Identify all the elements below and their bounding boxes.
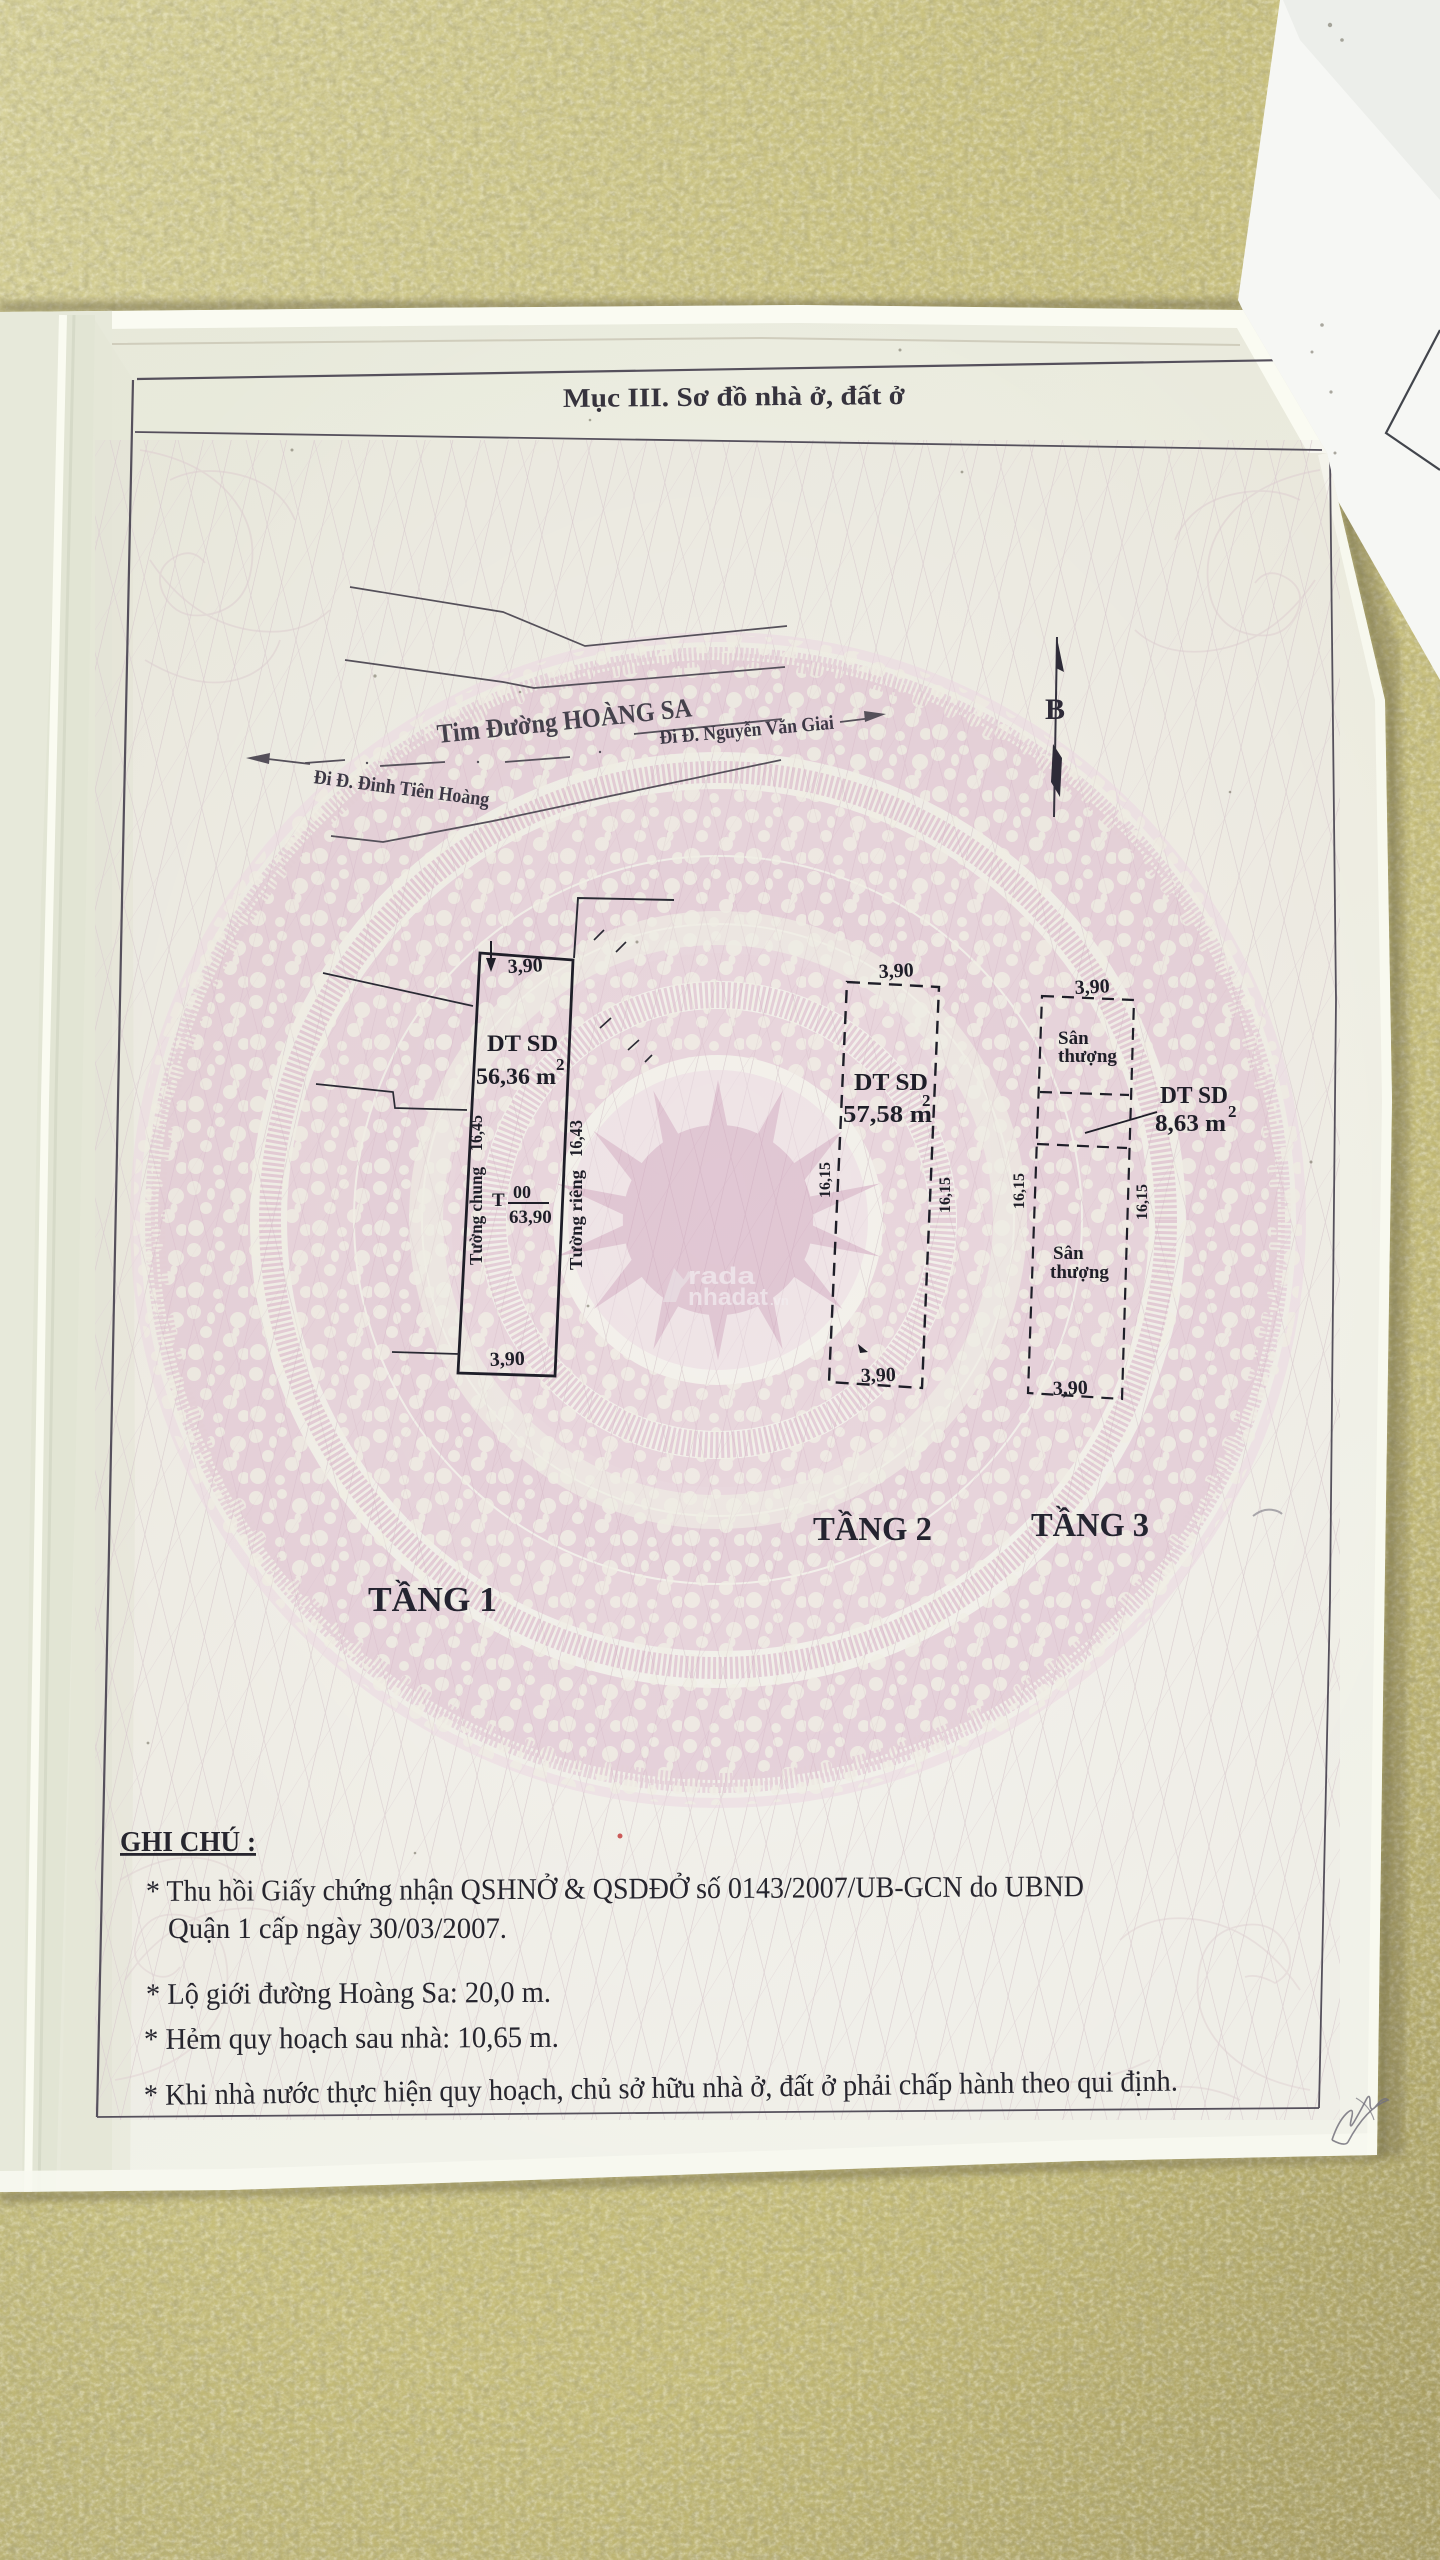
svg-text:8,63 m: 8,63 m (1155, 1111, 1226, 1137)
svg-text:00: 00 (513, 1182, 531, 1202)
svg-text:Mục III. Sơ đồ nhà ở, đất ở: Mục III. Sơ đồ nhà ở, đất ở (563, 380, 905, 413)
svg-text:2: 2 (556, 1055, 565, 1074)
svg-text:TẦNG 1: TẦNG 1 (368, 1579, 497, 1619)
svg-text:3,90: 3,90 (860, 1364, 896, 1387)
svg-text:* Hẻm quy hoạch sau nhà: 10,65: * Hẻm quy hoạch sau nhà: 10,65 m. (144, 2021, 559, 2056)
svg-text:63,90: 63,90 (509, 1207, 552, 1228)
svg-text:16,43: 16,43 (566, 1120, 586, 1157)
svg-text:GHI CHÚ :: GHI CHÚ : (120, 1827, 256, 1858)
svg-text:Tường chung: Tường chung (466, 1167, 486, 1265)
svg-text:3,90: 3,90 (1074, 975, 1110, 999)
svg-text:3,90: 3,90 (878, 959, 914, 983)
svg-text:* Thu hồi Giấy chứng nhận QSHN: * Thu hồi Giấy chứng nhận QSHNỞ & QSDĐỞ … (146, 1870, 1084, 1908)
svg-text:* Lộ giới đường Hoàng Sa: 20,0: * Lộ giới đường Hoàng Sa: 20,0 m. (146, 1976, 551, 2011)
svg-text:DT SD: DT SD (854, 1070, 928, 1096)
svg-text:16,15: 16,15 (1134, 1184, 1151, 1220)
svg-text:3,90: 3,90 (507, 954, 543, 978)
svg-text:thượng: thượng (1050, 1262, 1109, 1283)
svg-text:Tường riêng: Tường riêng (566, 1170, 586, 1270)
svg-text:thượng: thượng (1058, 1046, 1117, 1067)
svg-text:3,90: 3,90 (1052, 1377, 1088, 1400)
svg-text:57,58 m: 57,58 m (843, 1102, 932, 1128)
svg-text:B: B (1045, 693, 1065, 726)
svg-text:Sân: Sân (1053, 1243, 1084, 1264)
svg-text:16,45: 16,45 (466, 1115, 486, 1151)
svg-text:TẦNG 2: TẦNG 2 (813, 1509, 932, 1548)
svg-text:2: 2 (1228, 1102, 1237, 1121)
svg-text:2: 2 (922, 1091, 931, 1110)
svg-text:nhadat: nhadat (688, 1284, 768, 1311)
svg-text:TẦNG 3: TẦNG 3 (1031, 1505, 1149, 1544)
svg-text:T: T (492, 1190, 505, 1211)
svg-text:DT SD: DT SD (487, 1031, 558, 1056)
svg-text:16,15: 16,15 (817, 1162, 834, 1198)
svg-text:56,36 m: 56,36 m (476, 1064, 556, 1089)
svg-text:16,15: 16,15 (937, 1177, 954, 1213)
svg-text:DT SD: DT SD (1160, 1083, 1228, 1109)
svg-text:3,90: 3,90 (489, 1348, 525, 1371)
svg-text:16,15: 16,15 (1011, 1173, 1028, 1209)
svg-text:Quận 1 cấp ngày 30/03/2007.: Quận 1 cấp ngày 30/03/2007. (168, 1912, 507, 1945)
svg-text:.vn: .vn (770, 1293, 789, 1308)
